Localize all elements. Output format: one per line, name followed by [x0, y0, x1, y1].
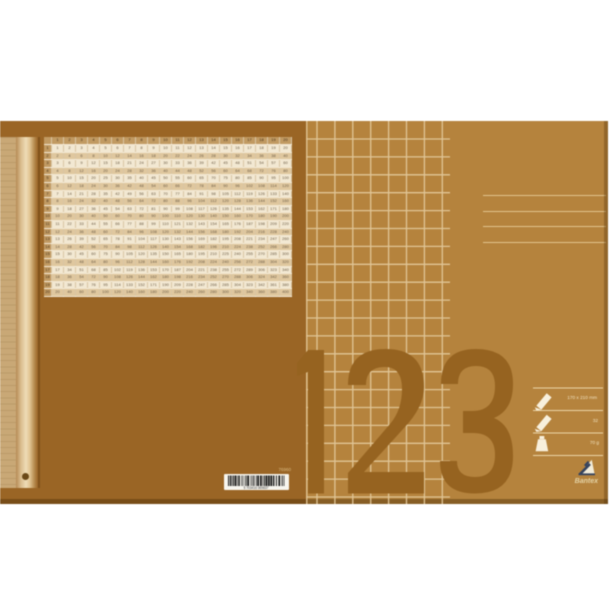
svg-text:5 703416 069837: 5 703416 069837 — [244, 486, 269, 490]
svg-text:76960: 76960 — [278, 467, 291, 472]
